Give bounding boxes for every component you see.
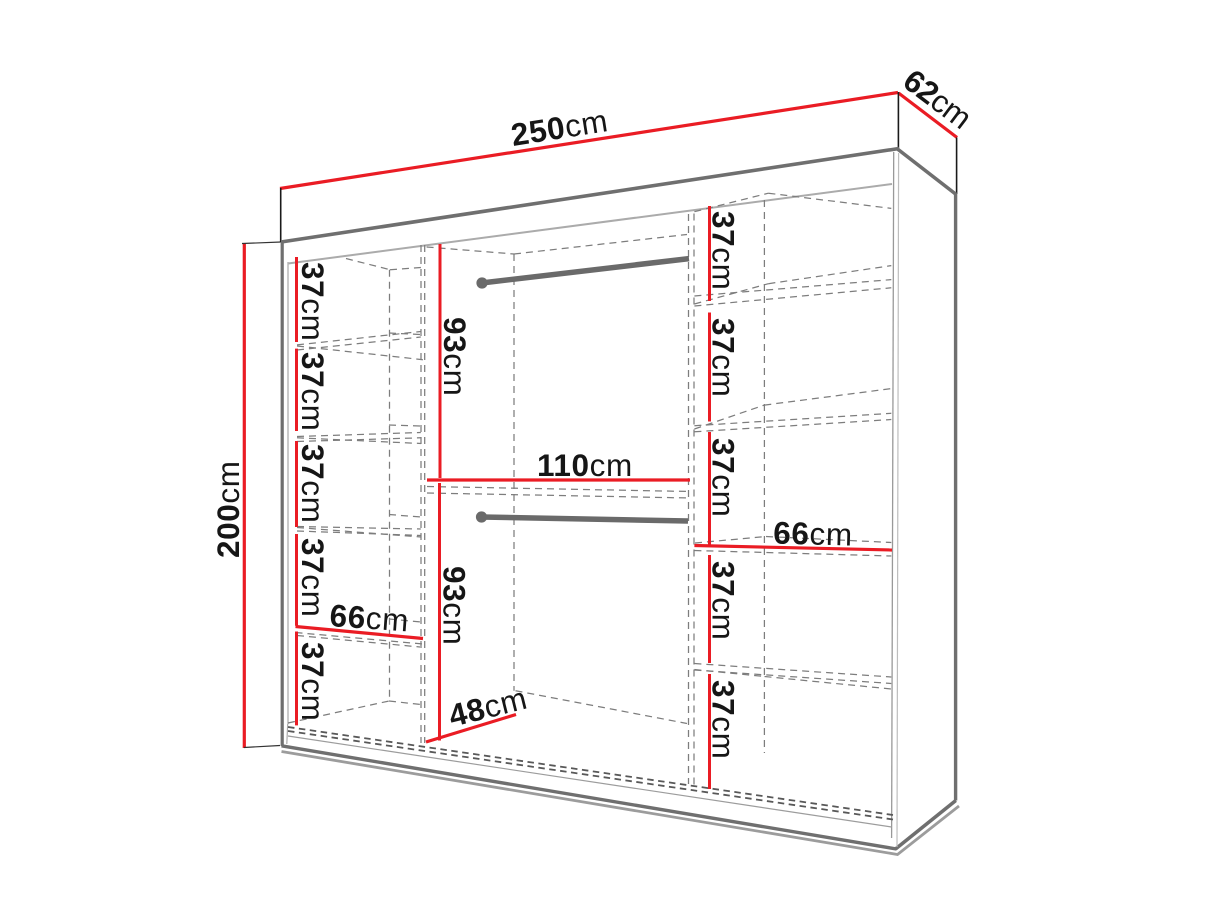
- svg-text:37cm: 37cm: [706, 211, 742, 290]
- svg-text:37cm: 37cm: [706, 318, 742, 397]
- svg-text:37cm: 37cm: [706, 438, 742, 517]
- svg-text:37cm: 37cm: [295, 352, 331, 431]
- svg-text:37cm: 37cm: [295, 262, 331, 341]
- svg-text:66cm: 66cm: [329, 597, 411, 638]
- svg-text:200cm: 200cm: [210, 460, 246, 558]
- svg-text:93cm: 93cm: [437, 566, 473, 645]
- svg-text:93cm: 93cm: [437, 317, 473, 396]
- svg-text:66cm: 66cm: [773, 515, 853, 553]
- svg-text:37cm: 37cm: [706, 680, 742, 759]
- svg-text:37cm: 37cm: [295, 444, 331, 523]
- svg-text:37cm: 37cm: [706, 561, 742, 640]
- svg-text:110cm: 110cm: [537, 447, 633, 483]
- svg-text:37cm: 37cm: [295, 538, 331, 617]
- svg-text:37cm: 37cm: [295, 642, 331, 721]
